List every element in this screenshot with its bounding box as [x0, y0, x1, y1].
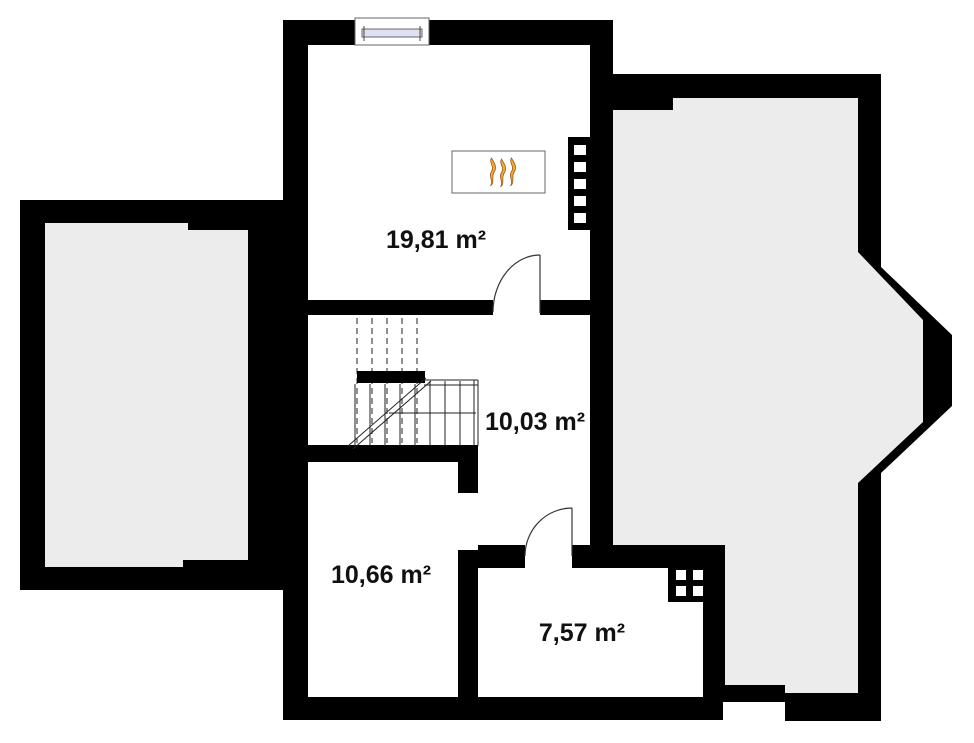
left-annex-interior — [45, 223, 248, 567]
room-top-interior — [308, 45, 590, 300]
door-opening-bottom — [525, 545, 572, 568]
door-opening-top — [493, 300, 540, 315]
room-area-label: 10,66 m² — [331, 561, 431, 589]
floor-plan-canvas: 19,81 m² 10,03 m² 10,66 m² 7,57 m² — [0, 0, 974, 743]
room-area-label: 10,03 m² — [485, 408, 585, 436]
floor-plan-page: 19,81 m² 10,03 m² 10,66 m² 7,57 m² — [0, 0, 974, 743]
room-area-label: 7,57 m² — [539, 619, 625, 647]
radiator-icon — [568, 137, 590, 230]
room-area-label: 19,81 m² — [386, 226, 486, 254]
fireplace-flames-icon — [452, 151, 545, 193]
stair-landing-wall — [357, 371, 425, 383]
hall-corridor-interior — [478, 445, 590, 545]
left-annex-wall-notch-bottom — [183, 560, 248, 567]
left-annex-wall-notch-top — [188, 223, 248, 230]
window-icon — [355, 18, 429, 45]
chimney-flue-icon — [668, 562, 712, 602]
doorway-bottom-left — [458, 493, 478, 550]
